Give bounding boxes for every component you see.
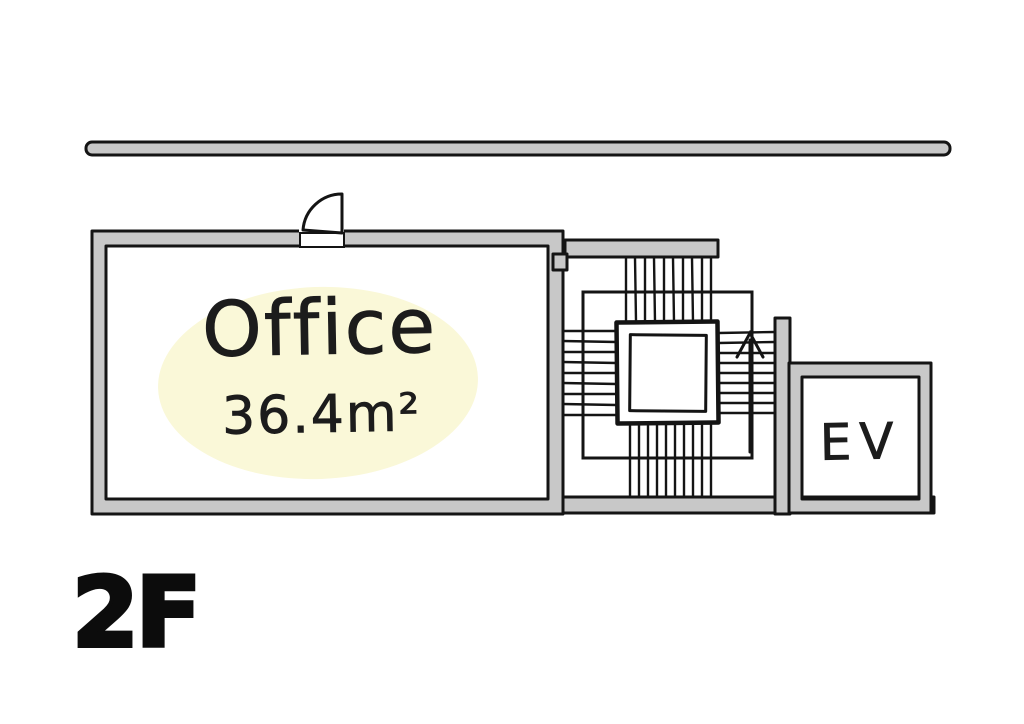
stair-core-inner — [630, 335, 707, 412]
office-area-label: 36.4m² — [222, 383, 422, 446]
wall-notch — [553, 254, 567, 270]
door-leaf-icon — [303, 194, 342, 233]
stair-top-wall — [565, 240, 718, 257]
floor-label: 2F — [72, 557, 198, 669]
stair-treads-top — [626, 257, 711, 322]
elevator-label: EV — [819, 412, 902, 471]
site-boundary-line — [86, 142, 950, 155]
elevator-room: EV — [775, 318, 931, 514]
floor-plan-page: Office 36.4m² — [0, 0, 1024, 724]
stair-treads-right — [719, 332, 775, 413]
floor-plan-canvas: Office 36.4m² — [0, 0, 1024, 724]
door-threshold — [300, 233, 344, 247]
office-room: Office 36.4m² — [92, 194, 563, 514]
office-room-label: Office — [201, 281, 438, 374]
stairwell — [553, 240, 775, 496]
stair-treads-left — [563, 331, 616, 415]
